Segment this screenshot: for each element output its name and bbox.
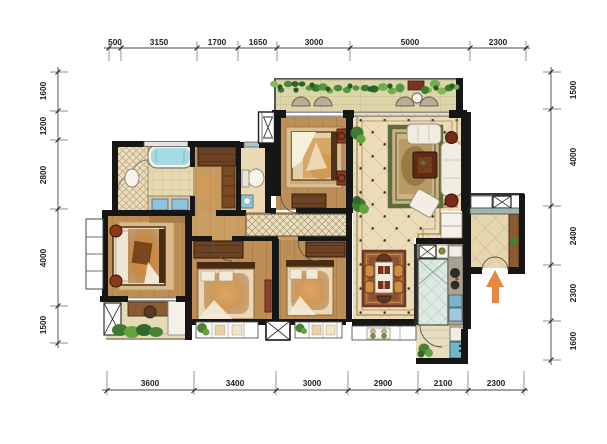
svg-text:1500: 1500 xyxy=(38,315,48,334)
svg-text:2300: 2300 xyxy=(489,37,508,47)
svg-text:3000: 3000 xyxy=(303,378,322,388)
svg-text:1600: 1600 xyxy=(38,81,48,100)
svg-text:4000: 4000 xyxy=(568,147,578,166)
svg-text:3400: 3400 xyxy=(226,378,245,388)
svg-text:2900: 2900 xyxy=(374,378,393,388)
svg-text:1200: 1200 xyxy=(38,116,48,135)
svg-text:2800: 2800 xyxy=(38,165,48,184)
svg-text:2400: 2400 xyxy=(568,226,578,245)
svg-text:1600: 1600 xyxy=(568,331,578,350)
svg-text:5000: 5000 xyxy=(401,37,420,47)
svg-text:3000: 3000 xyxy=(305,37,324,47)
svg-text:4000: 4000 xyxy=(38,248,48,267)
svg-text:1700: 1700 xyxy=(208,37,227,47)
svg-text:2100: 2100 xyxy=(434,378,453,388)
svg-text:1500: 1500 xyxy=(568,80,578,99)
svg-text:2300: 2300 xyxy=(487,378,506,388)
svg-text:1650: 1650 xyxy=(249,37,268,47)
svg-text:3600: 3600 xyxy=(141,378,160,388)
svg-text:3150: 3150 xyxy=(150,37,169,47)
svg-text:2300: 2300 xyxy=(568,283,578,302)
svg-text:500: 500 xyxy=(108,37,122,47)
